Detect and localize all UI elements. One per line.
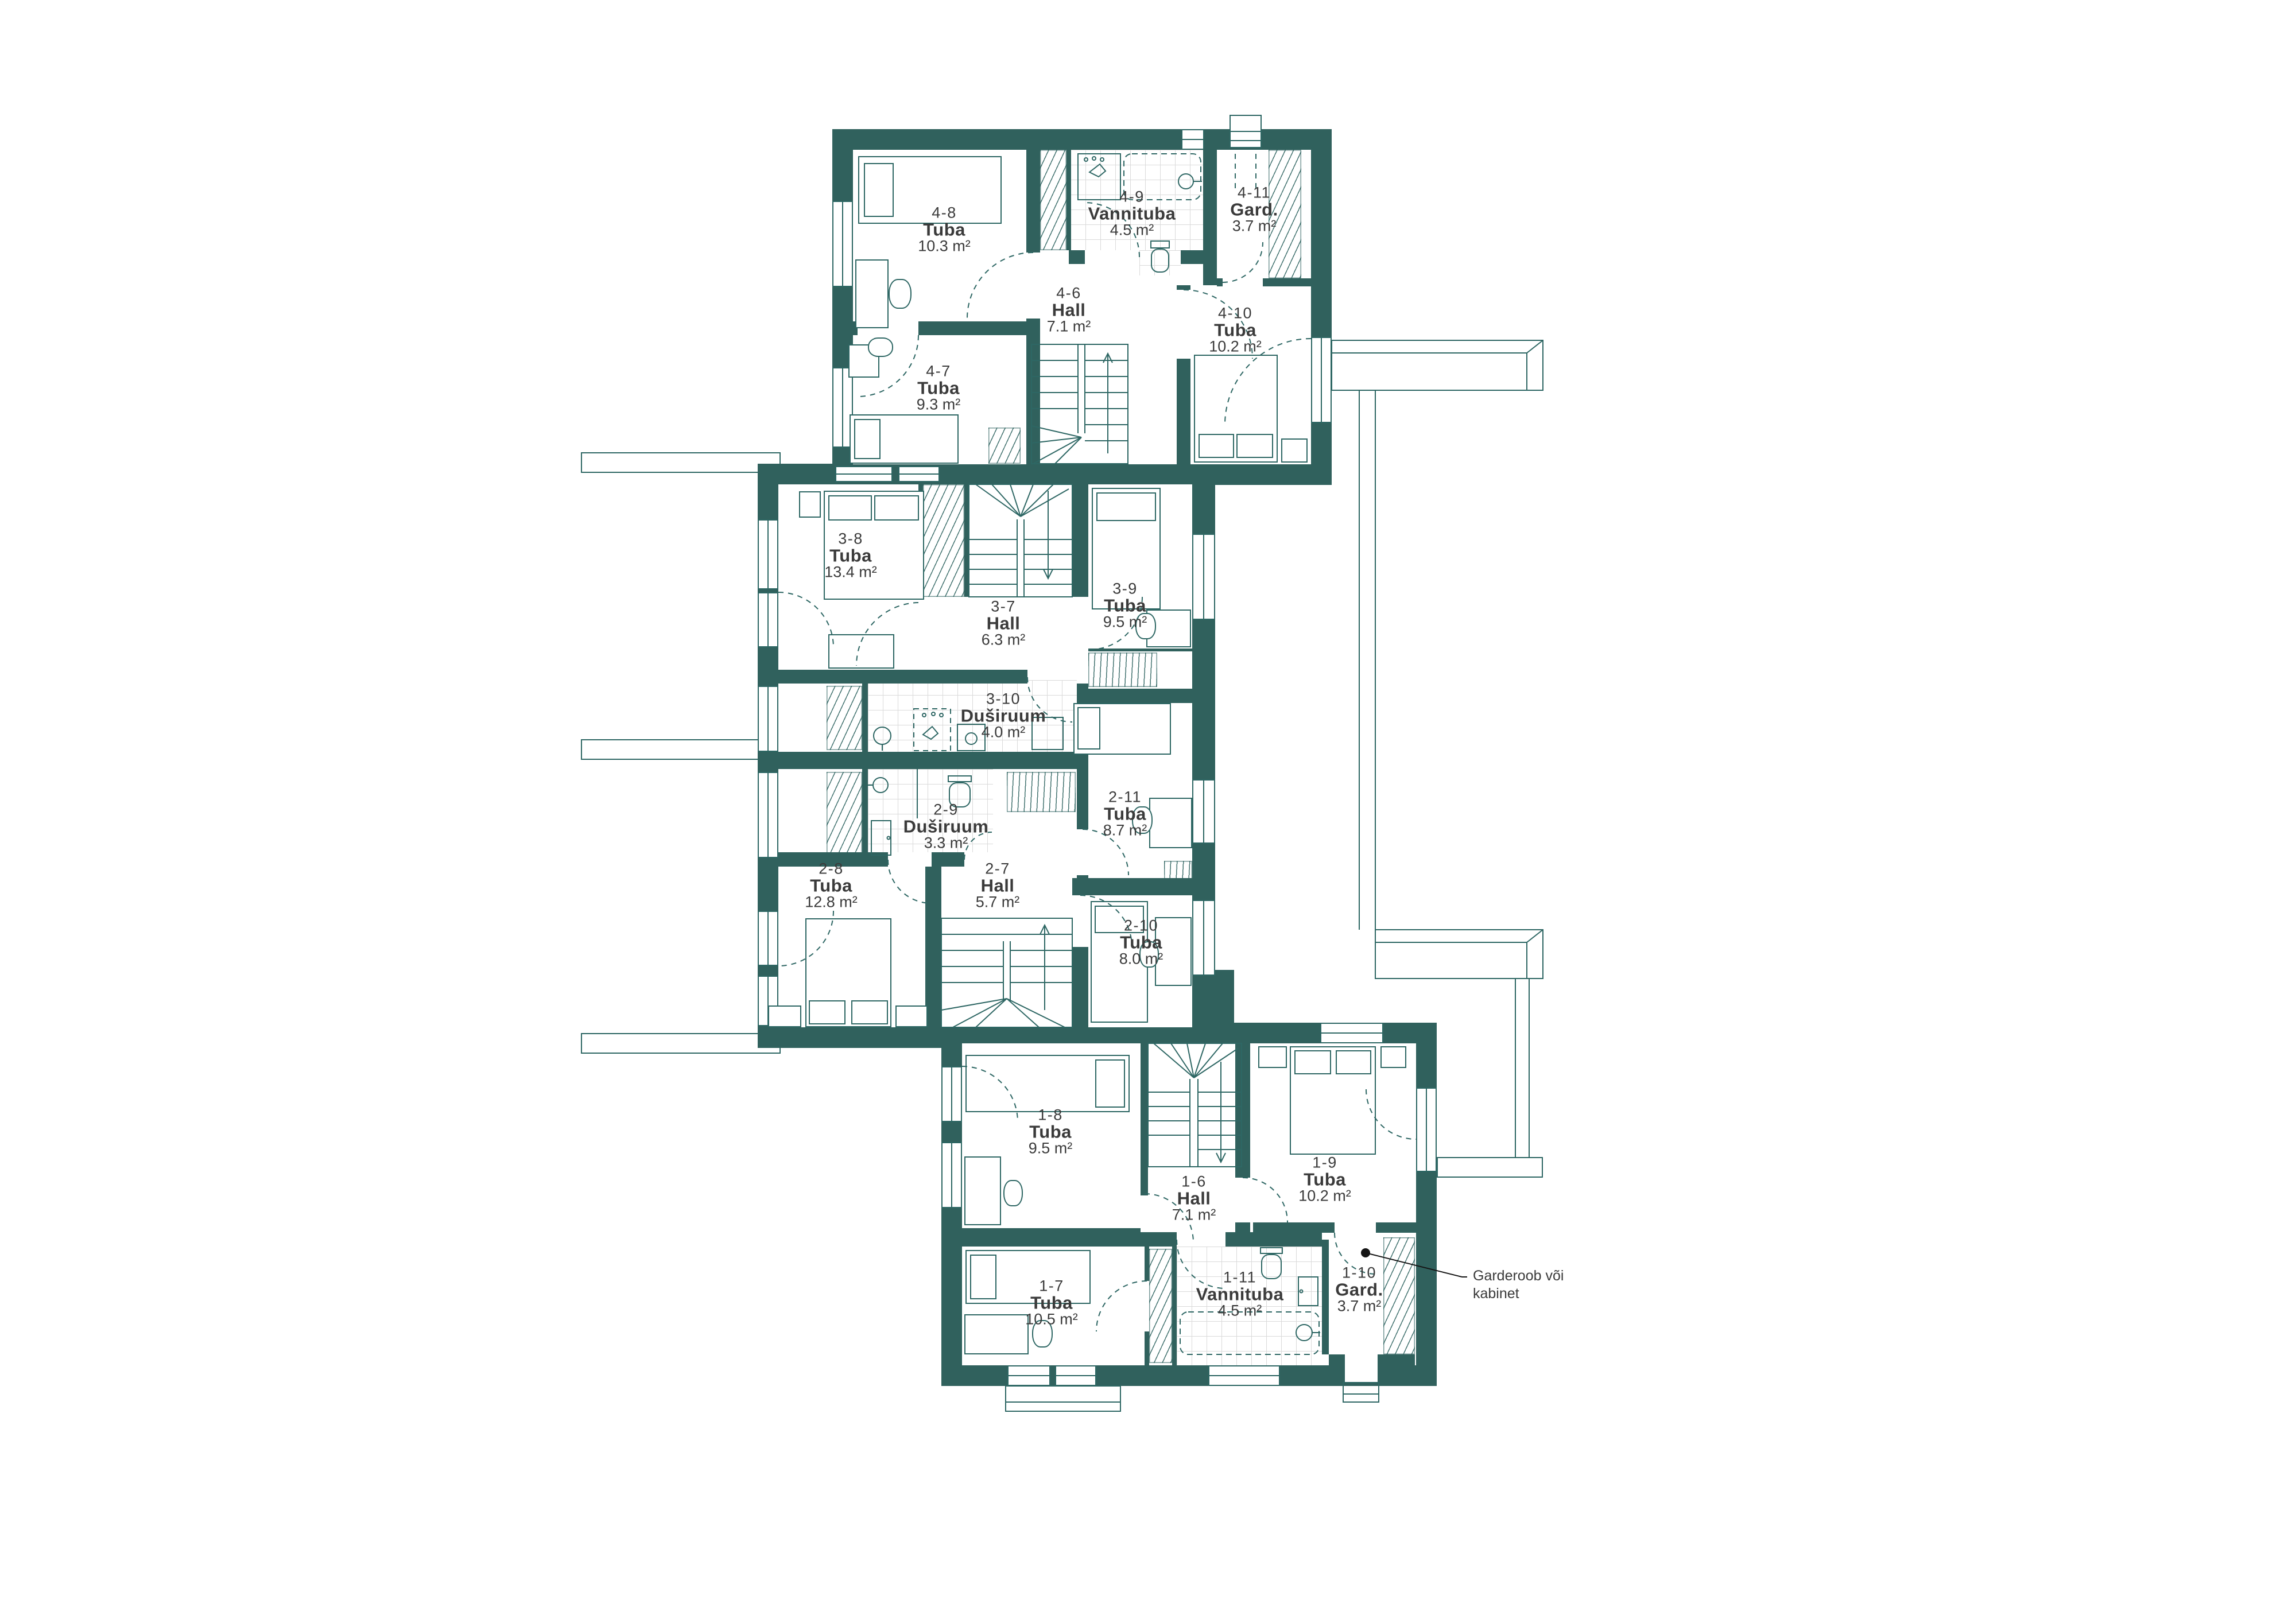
room-code: 1-7 bbox=[1025, 1278, 1078, 1295]
pillow bbox=[874, 495, 919, 521]
wall bbox=[1235, 1043, 1250, 1178]
window-3-8 bbox=[758, 519, 778, 589]
wall bbox=[1141, 1043, 1148, 1143]
room-area: 6.3 m² bbox=[982, 632, 1026, 649]
wall bbox=[862, 769, 868, 861]
wall bbox=[1225, 1232, 1235, 1247]
closet-hatch-nook-lower bbox=[827, 772, 862, 858]
room-name: Duširuum bbox=[961, 708, 1046, 724]
window-3-8-clerestory-a bbox=[835, 466, 893, 482]
wall bbox=[1066, 150, 1071, 250]
room-area: 13.4 m² bbox=[824, 564, 877, 581]
nightstand-2-8-left bbox=[768, 1005, 801, 1027]
room-label-3-9: 3-9 Tuba 9.5 m² bbox=[1103, 581, 1147, 631]
wall bbox=[1026, 150, 1040, 253]
chair-4-7 bbox=[868, 337, 893, 357]
window-1-11 bbox=[1208, 1365, 1280, 1386]
window-2-11 bbox=[1192, 779, 1215, 844]
closet-hatch-nook-upper bbox=[827, 686, 862, 750]
room-code: 4-8 bbox=[918, 205, 971, 222]
wall bbox=[1329, 1354, 1345, 1386]
wall bbox=[932, 852, 964, 867]
room-label-4-10: 4-10 Tuba 10.2 m² bbox=[1209, 305, 1262, 355]
room-area: 8.7 m² bbox=[1103, 822, 1147, 839]
room-code: 4-7 bbox=[917, 363, 961, 380]
room-area: 7.1 m² bbox=[1047, 319, 1091, 335]
room-code: 1-11 bbox=[1196, 1269, 1284, 1286]
room-name: Gard. bbox=[1335, 1282, 1383, 1298]
room-label-4-6: 4-6 Hall 7.1 m² bbox=[1047, 285, 1091, 335]
window-2-10 bbox=[1192, 900, 1215, 976]
room-code: 4-6 bbox=[1047, 285, 1091, 302]
room-area: 9.5 m² bbox=[1103, 614, 1147, 631]
closet-hatch-hall-4-6 bbox=[1040, 150, 1066, 250]
closet-hatch-3-8 bbox=[923, 484, 964, 597]
room-label-2-8: 2-8 Tuba 12.8 m² bbox=[805, 861, 858, 911]
window-3-9 bbox=[1192, 534, 1215, 620]
bathroom-floor-4-9-niche bbox=[1139, 250, 1181, 275]
room-code: 1-8 bbox=[1029, 1107, 1073, 1124]
window-1-9 bbox=[1416, 1088, 1437, 1172]
exterior-door-1-10 bbox=[1345, 1354, 1378, 1383]
nightstand-3-8-left bbox=[799, 491, 821, 518]
room-code: 2-11 bbox=[1103, 789, 1147, 806]
pillow bbox=[1096, 492, 1156, 521]
window-nook-upper bbox=[758, 686, 778, 752]
window-4-9-top bbox=[1181, 129, 1204, 150]
pillow bbox=[1077, 707, 1100, 750]
room-area: 3.7 m² bbox=[1335, 1298, 1383, 1315]
room-code: 2-10 bbox=[1119, 918, 1163, 934]
pillow bbox=[864, 163, 894, 217]
wall bbox=[1145, 1331, 1149, 1365]
wall bbox=[1235, 1232, 1322, 1247]
wall bbox=[1235, 1222, 1250, 1232]
room-label-4-8: 4-8 Tuba 10.3 m² bbox=[918, 205, 971, 255]
room-area: 9.3 m² bbox=[917, 397, 961, 413]
desk-3-8 bbox=[828, 634, 894, 669]
room-area: 10.3 m² bbox=[918, 238, 971, 255]
wall bbox=[778, 752, 1077, 769]
wall bbox=[1376, 1222, 1429, 1233]
room-code: 4-9 bbox=[1088, 189, 1176, 205]
terrace-rail-right bbox=[1437, 1157, 1543, 1178]
room-area: 5.7 m² bbox=[976, 894, 1020, 911]
room-code: 3-10 bbox=[961, 691, 1046, 708]
room-name: Tuba bbox=[805, 877, 858, 894]
room-label-3-8: 3-8 Tuba 13.4 m² bbox=[824, 531, 877, 581]
pillow bbox=[854, 419, 881, 459]
room-name: Tuba bbox=[1209, 322, 1262, 339]
room-label-2-10: 2-10 Tuba 8.0 m² bbox=[1119, 918, 1163, 968]
firewall-rail-bottom bbox=[581, 1033, 781, 1054]
wall bbox=[1177, 285, 1190, 290]
wall bbox=[1088, 689, 1192, 703]
room-name: Gard. bbox=[1230, 201, 1278, 218]
wall bbox=[1172, 1247, 1177, 1365]
chair-1-8 bbox=[1003, 1180, 1023, 1206]
wall bbox=[1378, 1354, 1415, 1386]
desk-2-11 bbox=[1149, 798, 1192, 848]
pillow bbox=[1095, 1059, 1125, 1108]
wall bbox=[962, 1228, 1141, 1247]
room-name: Tuba bbox=[1103, 806, 1147, 822]
room-area: 4.5 m² bbox=[1196, 1303, 1284, 1319]
room-code: 1-10 bbox=[1335, 1265, 1383, 1282]
pillow bbox=[970, 1255, 996, 1299]
wall bbox=[1141, 1232, 1177, 1247]
room-name: Hall bbox=[1172, 1190, 1216, 1207]
wall bbox=[1263, 278, 1311, 286]
room-name: Hall bbox=[1047, 302, 1091, 319]
wall bbox=[1072, 484, 1088, 597]
room-area: 3.7 m² bbox=[1230, 218, 1278, 235]
room-name: Tuba bbox=[1029, 1124, 1073, 1140]
nightstand-1-9-right bbox=[1380, 1046, 1406, 1068]
room-area: 9.5 m² bbox=[1029, 1140, 1073, 1157]
room-name: Tuba bbox=[824, 548, 877, 564]
wall bbox=[1069, 250, 1085, 264]
room-code: 3-7 bbox=[982, 599, 1026, 615]
wall bbox=[862, 684, 868, 752]
wall bbox=[1088, 649, 1192, 651]
window-1-8 bbox=[941, 1142, 962, 1208]
wall bbox=[1072, 947, 1088, 1027]
nightstand-1-9-left bbox=[1258, 1046, 1287, 1068]
nightstand-4-10 bbox=[1281, 438, 1308, 463]
room-name: Tuba bbox=[1298, 1171, 1351, 1188]
room-label-4-7: 4-7 Tuba 9.3 m² bbox=[917, 363, 961, 413]
room-code: 2-8 bbox=[805, 861, 858, 877]
room-area: 10.2 m² bbox=[1209, 339, 1262, 355]
floor-plan: 4-6 Hall 7.1 m² 4-7 Tuba 9.3 m² 4-8 Tuba… bbox=[0, 0, 2296, 1623]
nightstand-2-8-right bbox=[895, 1005, 928, 1027]
window-nook-lower bbox=[758, 772, 778, 858]
room-label-1-8: 1-8 Tuba 9.5 m² bbox=[1029, 1107, 1073, 1157]
balcony-door-2-8 bbox=[758, 911, 778, 966]
room-code: 1-6 bbox=[1172, 1174, 1216, 1190]
room-label-1-6: 1-6 Hall 7.1 m² bbox=[1172, 1174, 1216, 1224]
room-area: 4.0 m² bbox=[961, 724, 1046, 741]
room-area: 7.1 m² bbox=[1172, 1207, 1216, 1224]
pillow bbox=[1199, 434, 1234, 458]
wall bbox=[1177, 359, 1190, 464]
wall bbox=[1217, 278, 1223, 286]
room-code: 3-9 bbox=[1103, 581, 1147, 597]
room-code: 2-7 bbox=[976, 861, 1020, 877]
wall bbox=[778, 670, 923, 684]
room-label-2-7: 2-7 Hall 5.7 m² bbox=[976, 861, 1020, 911]
window-1-7-a bbox=[1007, 1365, 1050, 1386]
room-code: 4-11 bbox=[1230, 185, 1278, 201]
room-label-1-9: 1-9 Tuba 10.2 m² bbox=[1298, 1155, 1351, 1205]
pillow bbox=[828, 495, 872, 521]
room-label-2-9: 2-9 Duširuum 3.3 m² bbox=[903, 802, 989, 852]
window-4-8 bbox=[832, 201, 853, 287]
room-name: Vannituba bbox=[1196, 1286, 1284, 1303]
room-code: 2-9 bbox=[903, 802, 989, 818]
window-1-7-b bbox=[1055, 1365, 1096, 1386]
room-area: 10.2 m² bbox=[1298, 1188, 1351, 1205]
room-name: Vannituba bbox=[1088, 205, 1176, 222]
annotation-line2: kabinet bbox=[1473, 1285, 1564, 1303]
wall bbox=[964, 484, 969, 597]
wall bbox=[1072, 878, 1088, 895]
wardrobe-rail-hall-2 bbox=[1007, 772, 1076, 812]
room-name: Tuba bbox=[1103, 597, 1147, 614]
wall bbox=[1181, 250, 1203, 264]
firewall-rail-top bbox=[581, 452, 781, 473]
roof-hatch-chimney bbox=[1230, 115, 1262, 148]
desk-1-7 bbox=[964, 1314, 1029, 1354]
room-label-4-11: 4-11 Gard. 3.7 m² bbox=[1230, 185, 1278, 235]
wall bbox=[1145, 1247, 1149, 1281]
desk-4-8 bbox=[855, 259, 889, 328]
terrace-door-4-10 bbox=[1311, 337, 1332, 423]
wall bbox=[1253, 1222, 1335, 1233]
room-code: 3-8 bbox=[824, 531, 877, 548]
room-code: 1-9 bbox=[1298, 1155, 1351, 1171]
pillow bbox=[851, 1000, 888, 1024]
desk-1-8 bbox=[964, 1156, 1001, 1225]
room-name: Tuba bbox=[1119, 934, 1163, 951]
room-label-4-9: 4-9 Vannituba 4.5 m² bbox=[1088, 189, 1176, 239]
pillow bbox=[1236, 434, 1273, 458]
room-label-3-10: 3-10 Duširuum 4.0 m² bbox=[961, 691, 1046, 741]
room-label-3-7: 3-7 Hall 6.3 m² bbox=[982, 599, 1026, 649]
wall bbox=[918, 670, 1027, 684]
chair-4-8 bbox=[889, 279, 912, 309]
wall bbox=[925, 867, 941, 1027]
wall bbox=[918, 321, 1040, 335]
room-name: Duširuum bbox=[903, 818, 989, 835]
balcony-door-3-8 bbox=[758, 592, 778, 647]
wall bbox=[1026, 319, 1040, 464]
room-name: Hall bbox=[976, 877, 1020, 894]
closet-hatch-1-7 bbox=[1149, 1249, 1172, 1363]
closet-hatch-4-7 bbox=[988, 428, 1021, 464]
pillow bbox=[1294, 1050, 1331, 1074]
wall bbox=[1088, 878, 1192, 895]
room-name: Tuba bbox=[918, 222, 971, 238]
room-name: Hall bbox=[982, 615, 1026, 632]
terrace-door-1-8 bbox=[941, 1066, 962, 1122]
room-area: 10.5 m² bbox=[1025, 1311, 1078, 1328]
pillow bbox=[809, 1000, 846, 1024]
annotation-line1: Garderoob või bbox=[1473, 1267, 1564, 1285]
window-3-8-clerestory-b bbox=[898, 466, 940, 482]
pillow bbox=[1336, 1050, 1371, 1074]
wardrobe-rail-3-9 bbox=[1088, 653, 1157, 687]
room-area: 8.0 m² bbox=[1119, 951, 1163, 968]
closet-hatch-1-10 bbox=[1383, 1237, 1415, 1354]
room-label-2-11: 2-11 Tuba 8.7 m² bbox=[1103, 789, 1147, 839]
wall bbox=[1141, 1143, 1148, 1195]
window-1-9-top bbox=[1320, 1023, 1383, 1043]
firewall-rail-middle bbox=[581, 739, 781, 760]
wall bbox=[1322, 1240, 1329, 1354]
room-name: Tuba bbox=[1025, 1295, 1078, 1311]
room-code: 4-10 bbox=[1209, 305, 1262, 322]
annotation-garderoob: Garderoob või kabinet bbox=[1473, 1267, 1564, 1303]
wall bbox=[1203, 150, 1217, 285]
room-area: 3.3 m² bbox=[903, 835, 989, 852]
room-name: Tuba bbox=[917, 380, 961, 397]
room-label-1-11: 1-11 Vannituba 4.5 m² bbox=[1196, 1269, 1284, 1319]
room-area: 4.5 m² bbox=[1088, 222, 1176, 239]
room-area: 12.8 m² bbox=[805, 894, 858, 911]
room-label-1-7: 1-7 Tuba 10.5 m² bbox=[1025, 1278, 1078, 1328]
room-label-1-10: 1-10 Gard. 3.7 m² bbox=[1335, 1265, 1383, 1315]
